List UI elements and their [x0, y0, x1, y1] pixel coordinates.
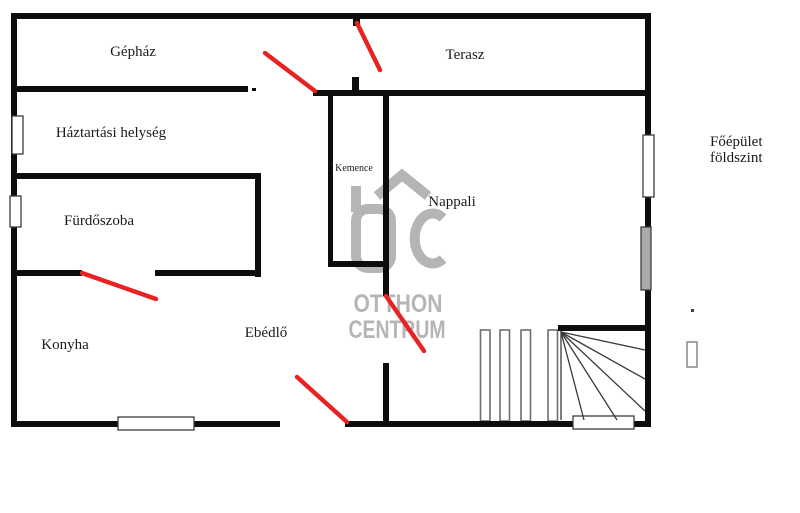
floor-plan-drawing: OTTHON CENTRUM	[0, 0, 800, 513]
window-left-2	[10, 196, 21, 227]
window-stairs-bottom	[573, 416, 634, 429]
specks	[691, 309, 694, 312]
wall-segment-terasz-bottom	[313, 90, 651, 96]
wall-segment-entry-stub-bottom	[352, 77, 359, 96]
staircase-steps	[481, 330, 558, 421]
wall-segment-furdo-bottom-right	[155, 270, 261, 276]
wall-segment-kemence-left	[328, 96, 333, 267]
wall-segment-center-upper	[383, 96, 389, 296]
staircase-fan	[561, 331, 645, 420]
window-right-1	[643, 135, 654, 197]
stair-step	[521, 330, 531, 421]
wall-segment-center-lower	[383, 363, 389, 427]
window-right-2	[641, 227, 651, 290]
door-swing-ebedlo	[297, 377, 347, 422]
floor-plan-image: OTTHON CENTRUM	[0, 0, 800, 513]
stair-step	[500, 330, 510, 421]
room-label-furdoszoba: Fürdőszoba	[64, 213, 134, 229]
room-label-kemence: Kemence	[335, 163, 373, 174]
room-label-nappali: Nappali	[428, 194, 475, 210]
plan-title-line1: Főépület	[710, 134, 763, 150]
wall-segment-top	[11, 13, 651, 19]
watermark-line2: CENTRUM	[349, 316, 446, 344]
plan-title-line2: földszint	[710, 150, 763, 166]
door-swing-terasz-entry	[357, 23, 380, 70]
wall-segment-furdo-right	[255, 173, 261, 277]
wall-segment-gephaz-bottom	[11, 86, 248, 92]
stair-step	[481, 330, 491, 421]
window-kitchen-bottom	[118, 417, 194, 430]
room-label-konyha: Konyha	[41, 337, 89, 353]
logo-letter-c-icon	[415, 214, 443, 264]
room-label-terasz: Terasz	[446, 47, 485, 63]
detached-window-symbol	[687, 342, 697, 367]
window-left-1	[12, 116, 23, 154]
room-label-ebedlo: Ebédlő	[245, 325, 288, 341]
wall-segment-furdo-bottom-left	[11, 270, 82, 276]
stair-fan-line	[561, 332, 645, 350]
door-swing-furdoszoba	[82, 273, 156, 299]
wall-segment-stair-top	[558, 325, 651, 331]
wall-segment-haztartasi-bottom	[11, 173, 261, 179]
speck	[691, 309, 694, 312]
room-label-gephaz: Gépház	[110, 44, 156, 60]
stair-fan-line	[561, 332, 584, 420]
wall-segment-kemence-bottom	[328, 261, 389, 267]
stair-step	[548, 330, 558, 421]
room-label-haztartasi-helyseg: Háztartási helység	[56, 125, 167, 141]
wall-tick	[252, 88, 256, 91]
wall-segment-right	[645, 13, 651, 427]
door-swing-gephaz	[265, 53, 315, 91]
